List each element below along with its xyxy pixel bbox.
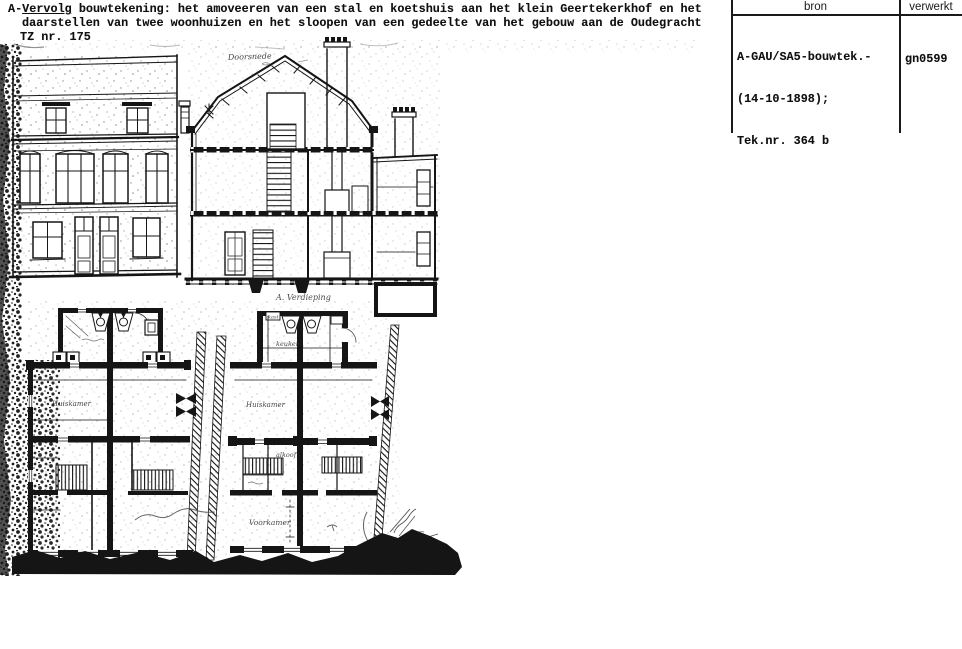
ground-floor-window — [30, 222, 65, 260]
room-label-kast: kast — [268, 315, 280, 321]
first-floor-window — [56, 151, 94, 204]
staircase-plan — [132, 470, 173, 490]
room-label-keuken: keuken — [276, 340, 300, 348]
room-label-alkoof: alkoof — [276, 451, 298, 459]
floor-plan-label: A. Verdieping — [275, 293, 331, 302]
first-floor-window — [103, 151, 128, 203]
cellar-detail — [376, 284, 435, 315]
attic-window — [46, 108, 66, 133]
first-floor-window — [146, 151, 168, 203]
staircase-plan — [322, 457, 362, 473]
first-floor-window — [20, 151, 40, 203]
staircase-plan — [243, 458, 283, 474]
section-door — [225, 232, 245, 275]
section-label: Doorsnede — [227, 51, 272, 62]
entrance-door — [75, 217, 93, 274]
ground-floor-window — [130, 218, 163, 259]
staircase-plan — [56, 465, 87, 490]
party-wall — [107, 308, 113, 557]
room-label-huiskamer: Huiskamer — [245, 401, 286, 409]
room-label-huiskamer: Huiskamer — [51, 400, 92, 408]
room-label-voorkamer: Voorkamer — [249, 518, 291, 527]
architectural-drawing: Doorsnede A. Verdieping — [0, 0, 962, 649]
attic-window — [127, 108, 148, 133]
entrance-door — [100, 217, 118, 274]
scanned-archive-card: A-Vervolg bouwtekening: het amoveeren va… — [0, 0, 962, 649]
first-floor-joists — [190, 211, 438, 217]
